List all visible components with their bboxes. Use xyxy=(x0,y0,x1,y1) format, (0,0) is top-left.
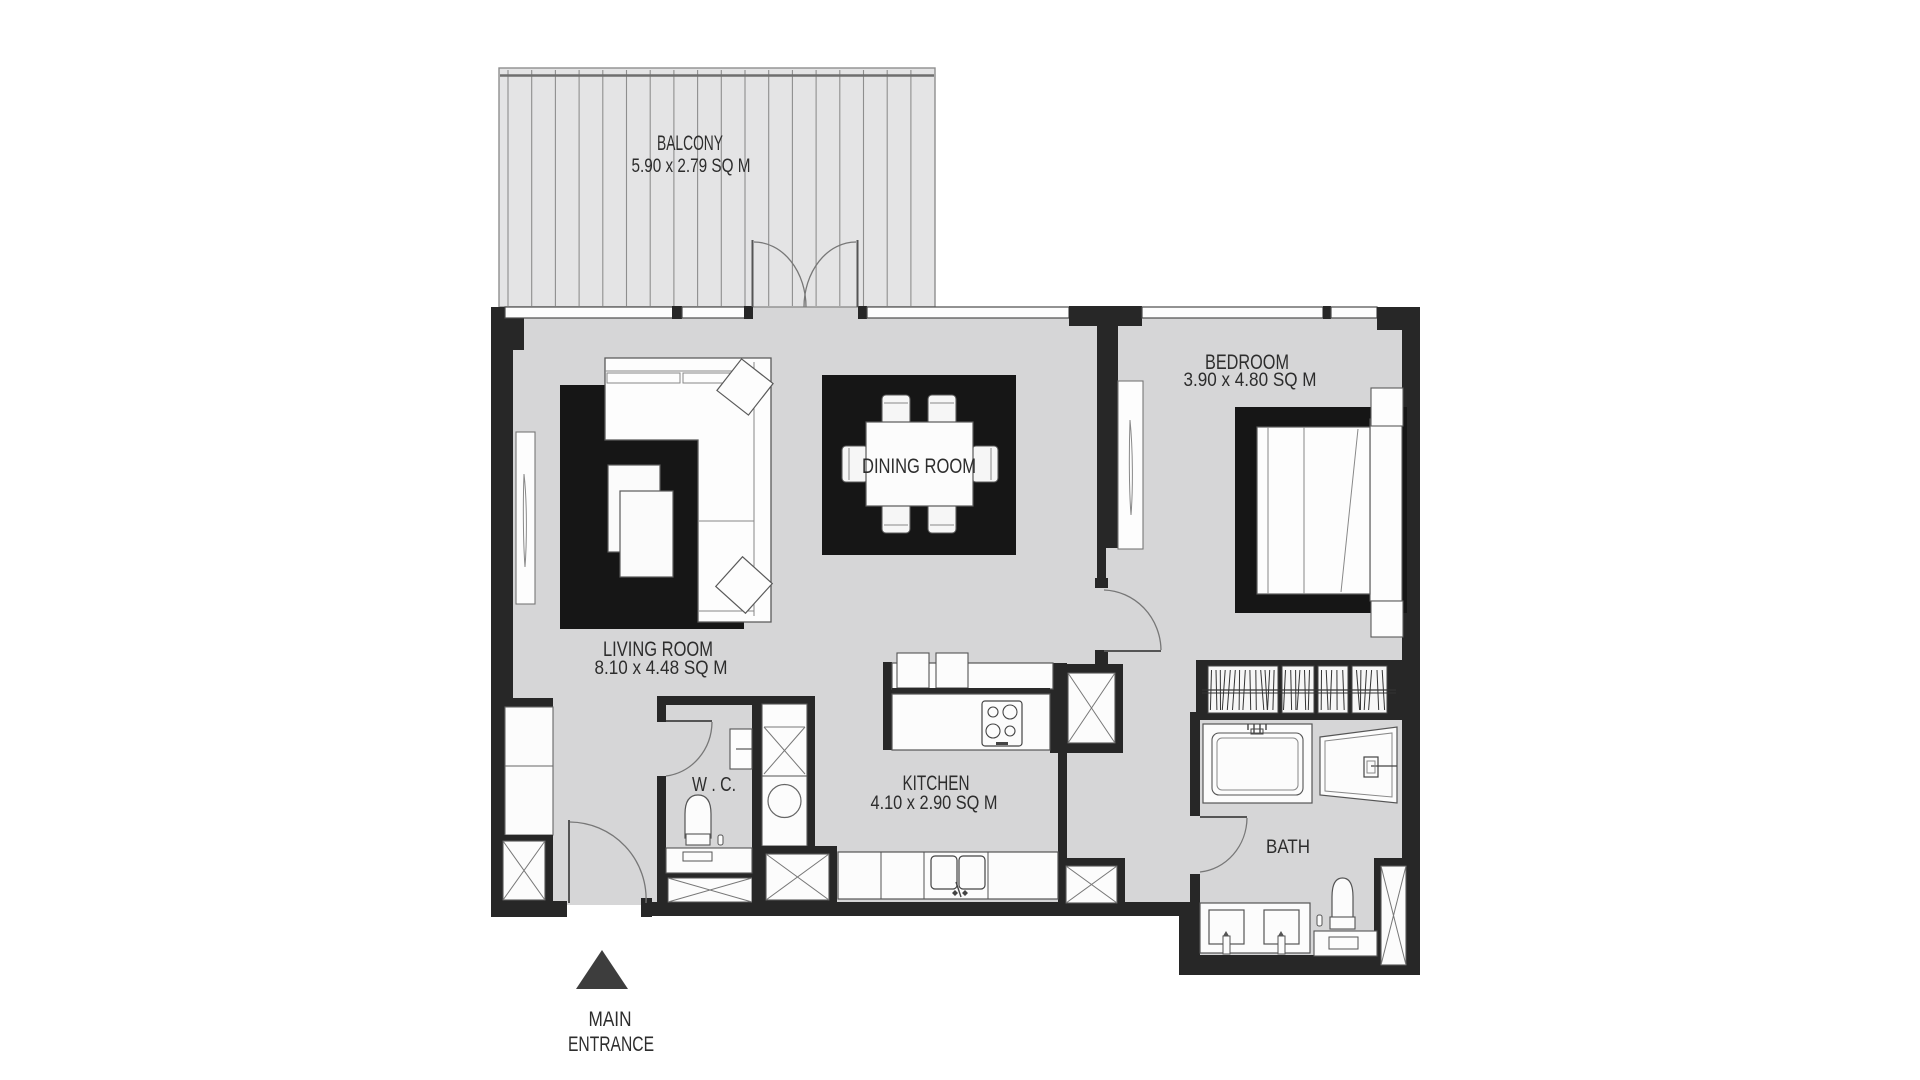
svg-text:W . C.: W . C. xyxy=(692,774,736,796)
svg-text:8.10 x 4.48 SQ M: 8.10 x 4.48 SQ M xyxy=(595,657,728,679)
svg-text:MAIN: MAIN xyxy=(589,1008,632,1031)
svg-text:DINING ROOM: DINING ROOM xyxy=(862,455,976,478)
svg-text:BATH: BATH xyxy=(1266,836,1310,858)
svg-text:4.10 x 2.90 SQ M: 4.10 x 2.90 SQ M xyxy=(871,792,998,814)
svg-text:BALCONY: BALCONY xyxy=(657,132,723,155)
svg-text:ENTRANCE: ENTRANCE xyxy=(568,1033,654,1056)
svg-text:3.90 x 4.80 SQ M: 3.90 x 4.80 SQ M xyxy=(1184,369,1317,391)
svg-text:5.90 x 2.79 SQ M: 5.90 x 2.79 SQ M xyxy=(632,155,751,177)
